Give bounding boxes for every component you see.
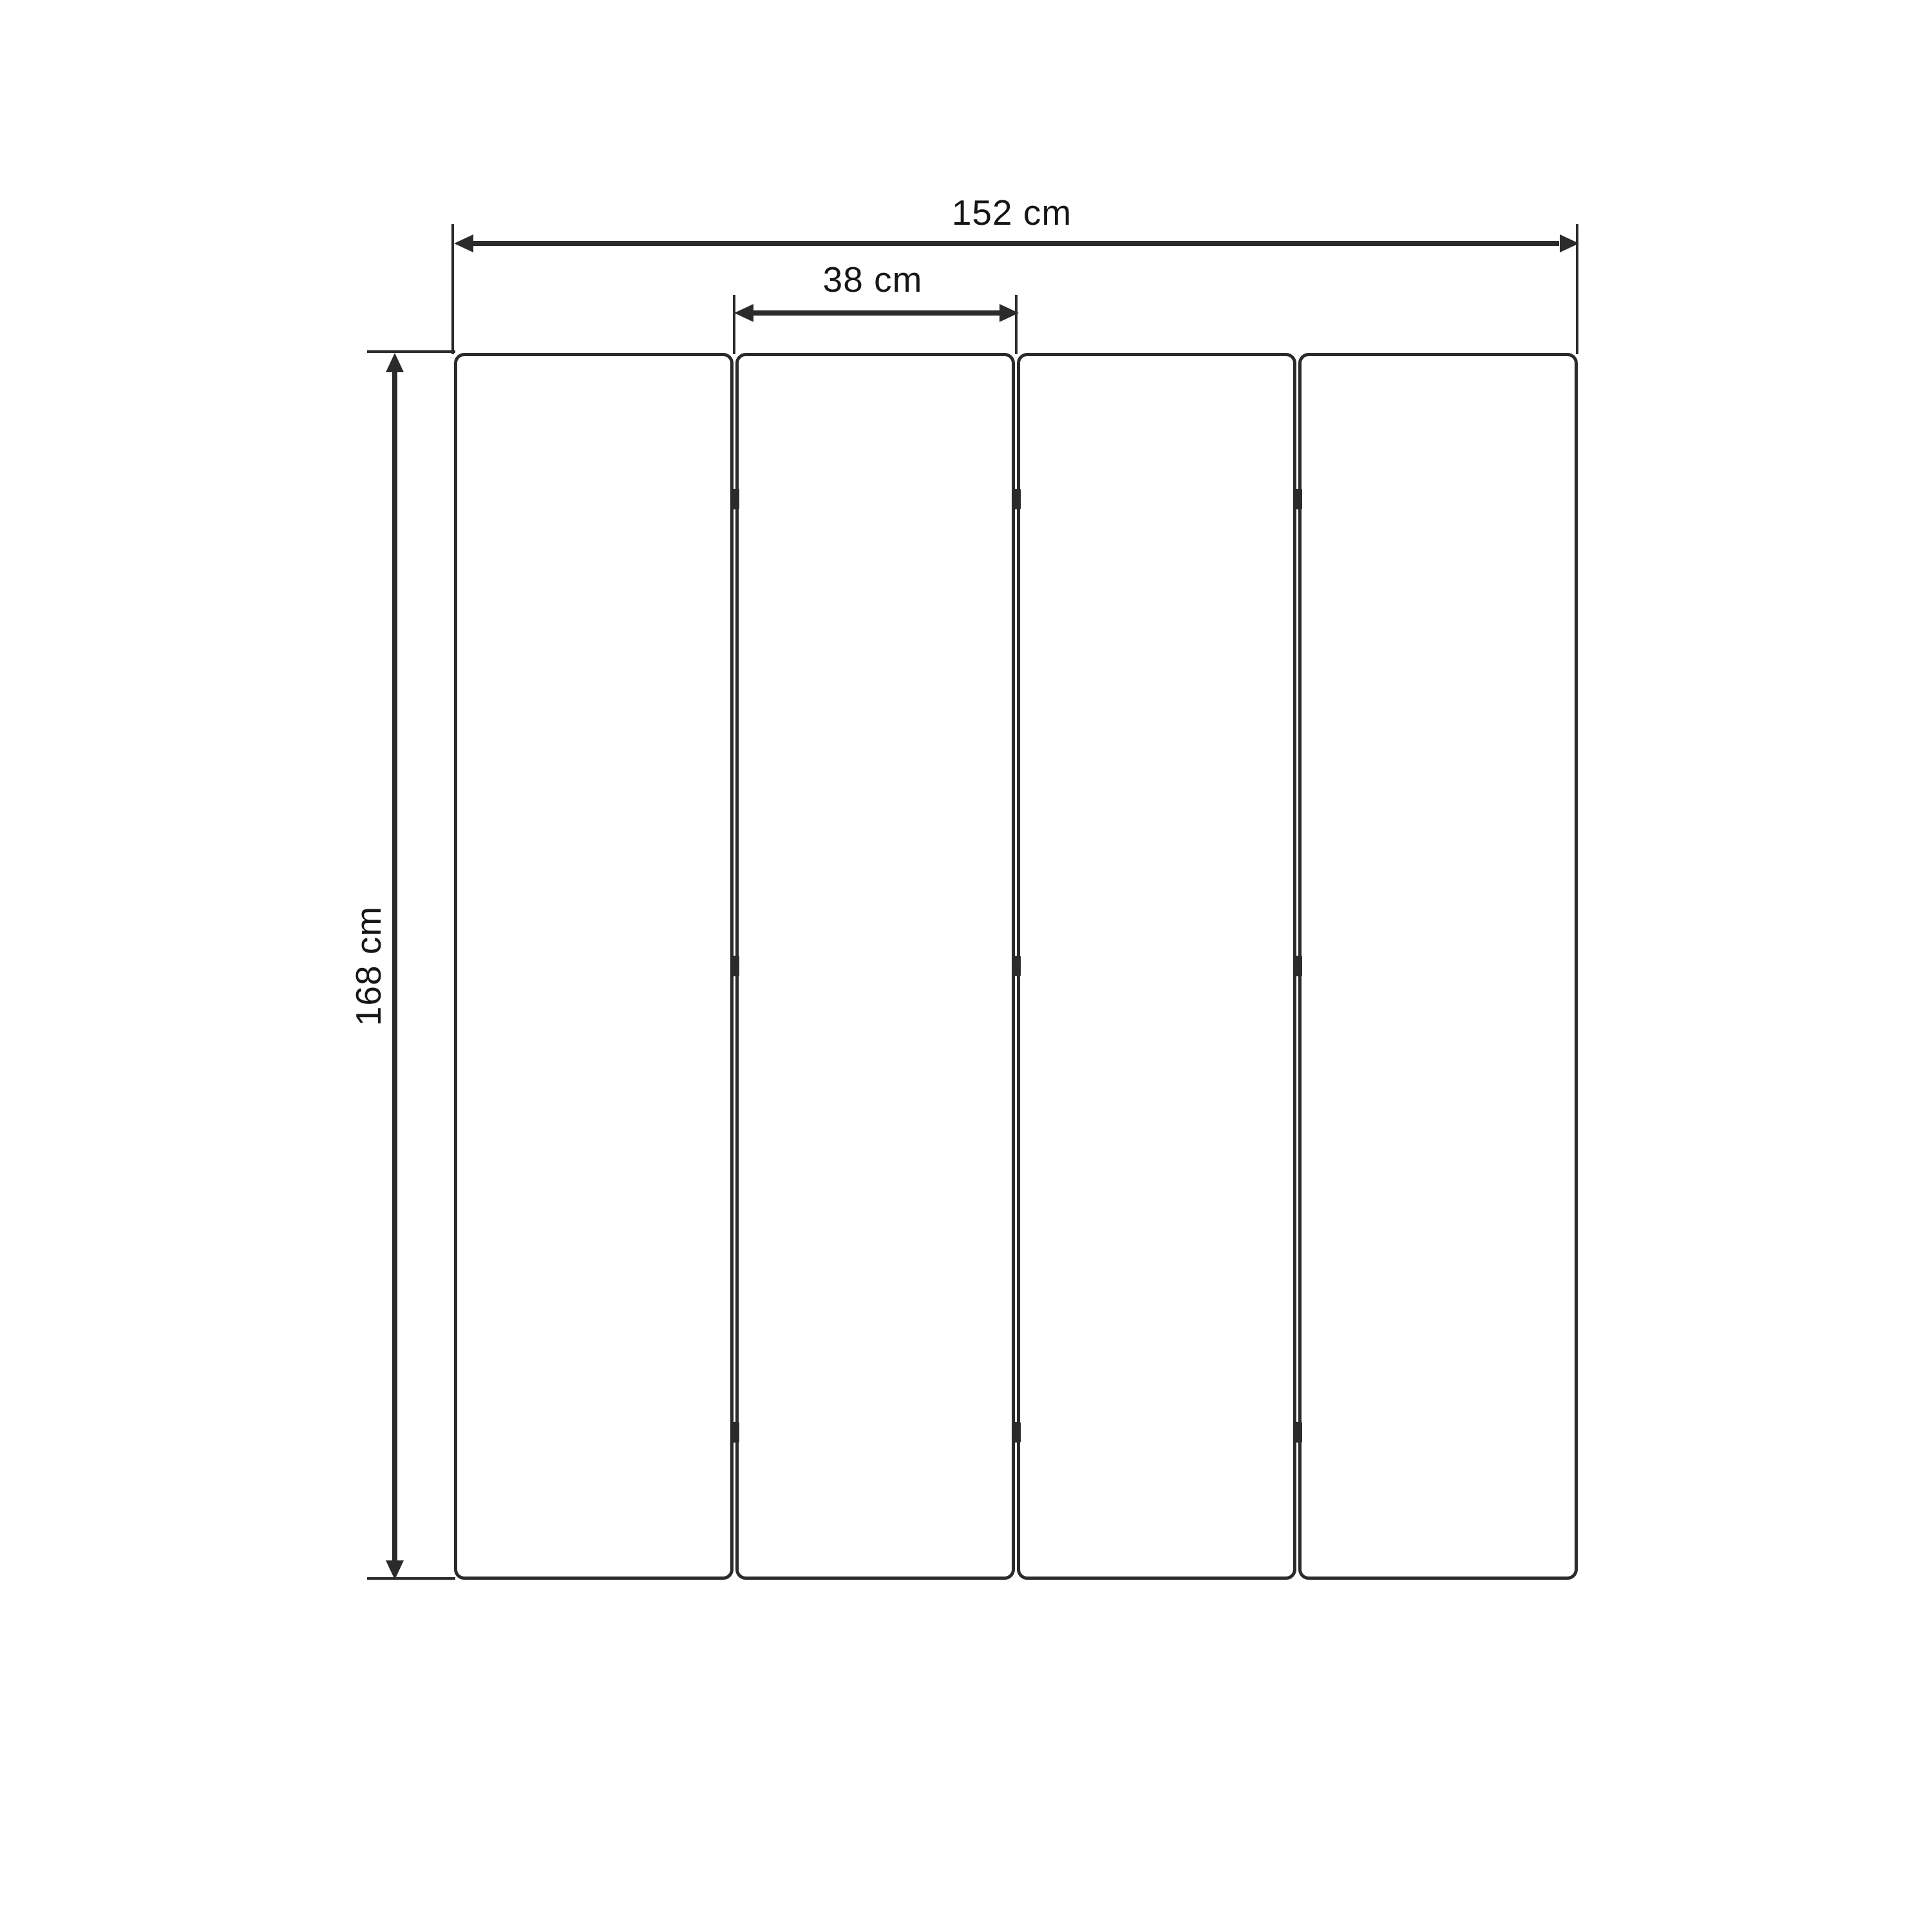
panel-4 [1298, 353, 1578, 1580]
hinge-junction2-bottom [1012, 1422, 1021, 1443]
hinge-junction2-top [1012, 489, 1021, 509]
hinge-junction1-middle [730, 956, 739, 976]
extension-line-height-bottom [367, 1577, 455, 1580]
hinge-junction2-middle [1012, 956, 1021, 976]
arrowhead-left-icon [454, 234, 473, 252]
panel-width-dimension-label: 38 cm [823, 259, 923, 300]
arrowhead-right-icon [999, 304, 1019, 322]
arrowhead-up-icon [386, 353, 404, 372]
arrowhead-right-icon [1560, 234, 1579, 252]
hinge-junction3-top [1293, 489, 1302, 509]
hinge-junction1-top [730, 489, 739, 509]
arrowhead-down-icon [386, 1560, 404, 1580]
dimension-arrow-height [392, 370, 397, 1563]
extension-line-height-top [367, 350, 455, 353]
panel-3 [1017, 353, 1296, 1580]
panel-1 [454, 353, 734, 1580]
arrowhead-left-icon [734, 304, 753, 322]
height-dimension-label: 168 cm [348, 906, 389, 1026]
panel-2 [735, 353, 1015, 1580]
diagram-canvas: 152 cm 38 cm 168 cm [0, 0, 1932, 1932]
hinge-junction3-bottom [1293, 1422, 1302, 1443]
dimension-arrow-total-width [471, 241, 1559, 246]
hinge-junction1-bottom [730, 1422, 739, 1443]
dimension-arrow-panel-width [751, 310, 999, 316]
total-width-dimension-label: 152 cm [952, 192, 1072, 233]
hinge-junction3-middle [1293, 956, 1302, 976]
